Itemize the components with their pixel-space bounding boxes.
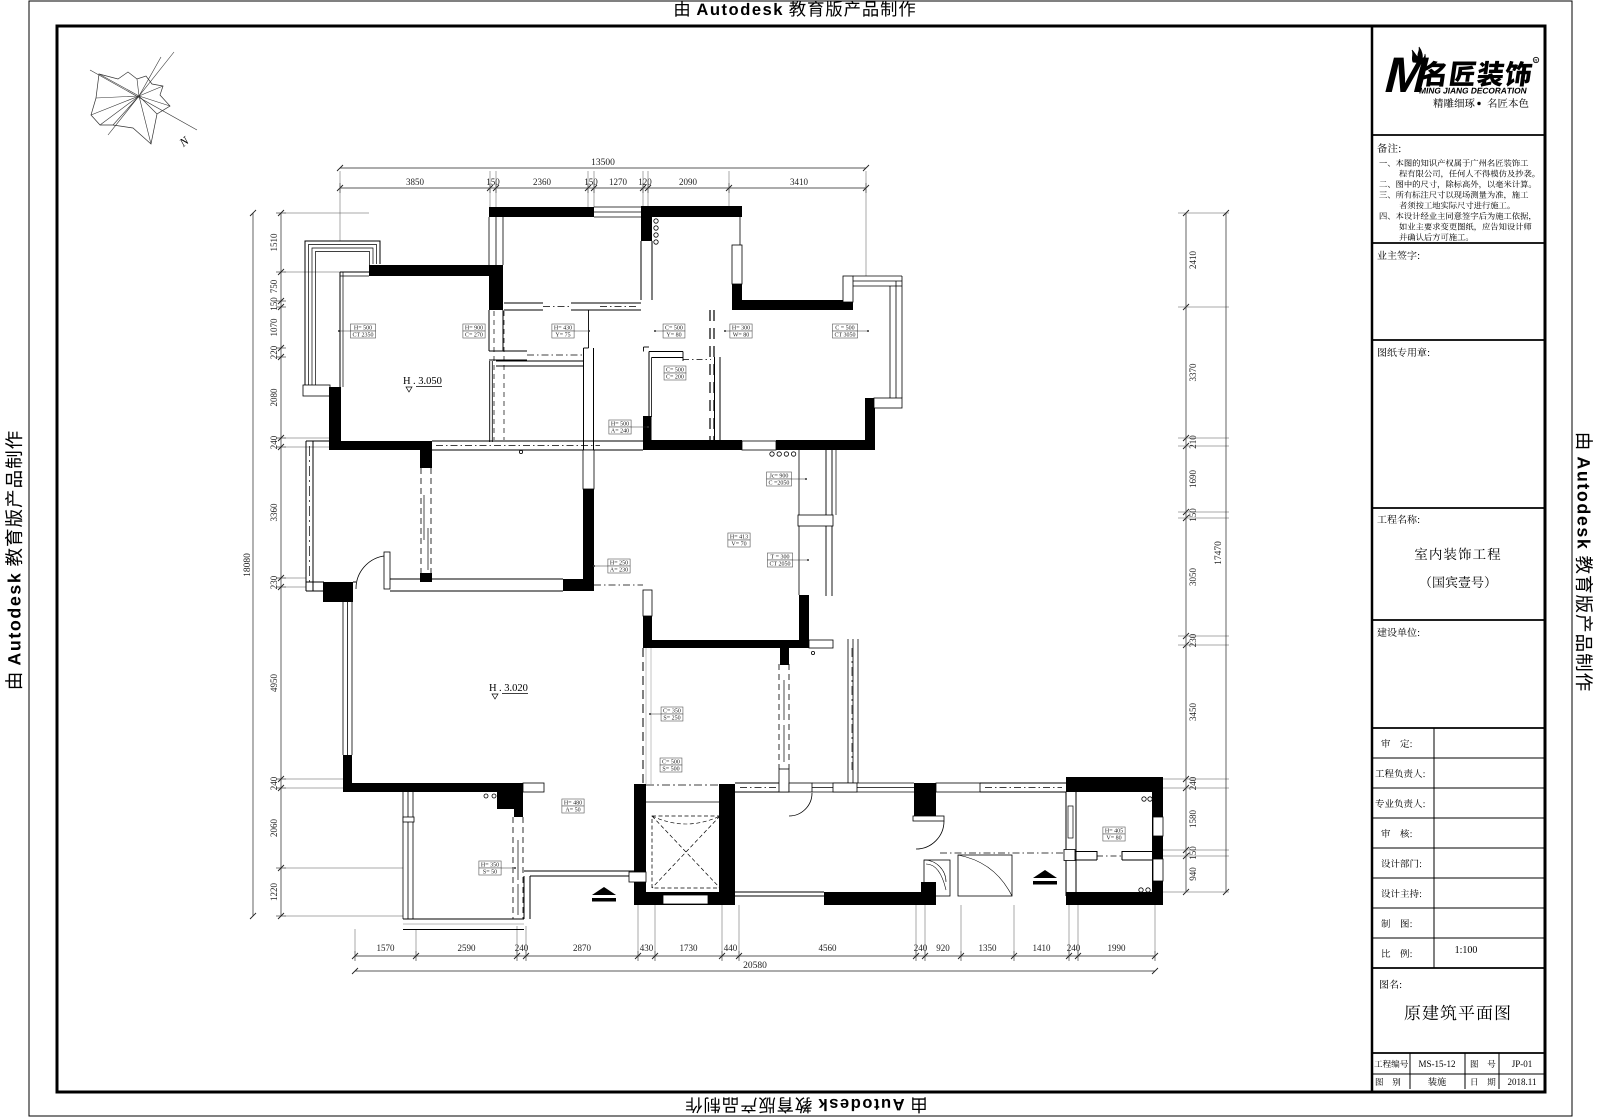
svg-text:S= 250: S= 250 [663, 716, 680, 722]
svg-text:. 3.020: . 3.020 [499, 683, 528, 694]
svg-text:Y= 75: Y= 75 [555, 333, 570, 339]
svg-text:2080: 2080 [269, 388, 279, 407]
svg-text:18080: 18080 [243, 553, 253, 577]
svg-text:430: 430 [640, 943, 654, 953]
svg-text:H= 430: H= 430 [554, 326, 572, 332]
svg-text:A= 230: A= 230 [610, 568, 628, 574]
svg-text:1510: 1510 [269, 233, 279, 252]
svg-text:230: 230 [1188, 633, 1198, 647]
svg-text:H: H [403, 376, 411, 387]
svg-text:240: 240 [1188, 776, 1198, 790]
svg-text:Y= 80: Y= 80 [666, 333, 681, 339]
svg-text:C= 500: C= 500 [666, 368, 684, 374]
svg-text:150: 150 [584, 177, 598, 187]
svg-text:R: R [1534, 58, 1537, 63]
svg-text:C= 500: C= 500 [662, 760, 680, 766]
svg-text:120: 120 [638, 177, 652, 187]
svg-text:440: 440 [724, 943, 738, 953]
svg-text:2870: 2870 [573, 943, 592, 953]
svg-text:JP-01: JP-01 [1512, 1059, 1533, 1069]
svg-text:150: 150 [1188, 508, 1198, 522]
svg-text:H= 500: H= 500 [611, 422, 629, 428]
svg-text:240: 240 [269, 776, 279, 790]
svg-text:3850: 3850 [406, 177, 425, 187]
svg-text:3450: 3450 [1188, 703, 1198, 722]
svg-text:H= 413: H= 413 [730, 535, 748, 541]
svg-text:H= 250: H= 250 [610, 561, 628, 567]
svg-text:C =2050: C =2050 [769, 481, 790, 487]
svg-text:H= 900: H= 900 [465, 326, 483, 332]
svg-text:CT 2050: CT 2050 [769, 562, 790, 568]
svg-text:H: H [489, 683, 497, 694]
svg-text:240: 240 [269, 435, 279, 449]
svg-text:MS-15-12: MS-15-12 [1418, 1059, 1455, 1069]
svg-text:CT 3050: CT 3050 [834, 333, 855, 339]
svg-text:17470: 17470 [1214, 541, 1224, 565]
svg-text:20580: 20580 [743, 961, 767, 971]
svg-text:Jc= 900: Jc= 900 [770, 474, 789, 480]
svg-text:H= 350: H= 350 [481, 863, 499, 869]
svg-text:3410: 3410 [790, 177, 809, 187]
svg-text:750: 750 [269, 279, 279, 293]
svg-text:210: 210 [1188, 435, 1198, 449]
svg-text:2360: 2360 [533, 177, 552, 187]
svg-text:H= 500: H= 500 [354, 326, 372, 332]
svg-text:2590: 2590 [458, 943, 477, 953]
svg-text:2090: 2090 [679, 177, 698, 187]
svg-text:1220: 1220 [269, 883, 279, 902]
svg-text:3360: 3360 [269, 503, 279, 522]
svg-text:3370: 3370 [1188, 363, 1198, 382]
svg-text:13500: 13500 [591, 158, 615, 168]
svg-text:1270: 1270 [609, 177, 628, 187]
svg-text:3050: 3050 [1188, 568, 1198, 587]
svg-text:S= 500: S= 500 [662, 767, 679, 773]
svg-text:CT 2350: CT 2350 [352, 333, 373, 339]
svg-text:1730: 1730 [680, 943, 699, 953]
svg-text:C = 500: C = 500 [835, 326, 854, 332]
svg-text:2410: 2410 [1188, 251, 1198, 270]
svg-text:1350: 1350 [979, 943, 998, 953]
svg-text:H= 300: H= 300 [732, 326, 750, 332]
svg-text:S= 50: S= 50 [483, 870, 497, 876]
svg-text:150: 150 [486, 177, 500, 187]
svg-text:W= 80: W= 80 [733, 333, 750, 339]
svg-text:1690: 1690 [1188, 470, 1198, 489]
svg-text:150: 150 [269, 297, 279, 311]
svg-text:C= 350: C= 350 [663, 709, 681, 715]
svg-text:2060: 2060 [269, 819, 279, 838]
svg-text:920: 920 [936, 943, 950, 953]
svg-text:2018.11: 2018.11 [1508, 1077, 1537, 1087]
svg-text:1580: 1580 [1188, 810, 1198, 829]
svg-text:1410: 1410 [1033, 943, 1052, 953]
svg-text:150: 150 [1188, 846, 1198, 860]
svg-text:1570: 1570 [377, 943, 396, 953]
svg-text:C= 500: C= 500 [665, 326, 683, 332]
svg-text:A= 240: A= 240 [611, 429, 629, 435]
svg-text:C= 270: C= 270 [465, 333, 483, 339]
svg-text:220: 220 [269, 345, 279, 359]
svg-text:T = 300: T = 300 [771, 555, 790, 561]
svg-text:1070: 1070 [269, 318, 279, 337]
svg-text:C= 200: C= 200 [666, 375, 684, 381]
svg-text:4560: 4560 [819, 943, 838, 953]
svg-text:1990: 1990 [1108, 943, 1127, 953]
svg-text:H= 405: H= 405 [1105, 829, 1123, 835]
svg-text:940: 940 [1188, 867, 1198, 881]
svg-text:. 3.050: . 3.050 [413, 376, 442, 387]
svg-text:V= 80: V= 80 [1106, 836, 1121, 842]
svg-text:V= 70: V= 70 [731, 542, 746, 548]
svg-text:1:100: 1:100 [1455, 945, 1478, 956]
svg-text:A= 50: A= 50 [565, 808, 580, 814]
svg-text:4950: 4950 [269, 674, 279, 693]
svg-text:H= 480: H= 480 [564, 801, 582, 807]
svg-text:230: 230 [269, 575, 279, 589]
